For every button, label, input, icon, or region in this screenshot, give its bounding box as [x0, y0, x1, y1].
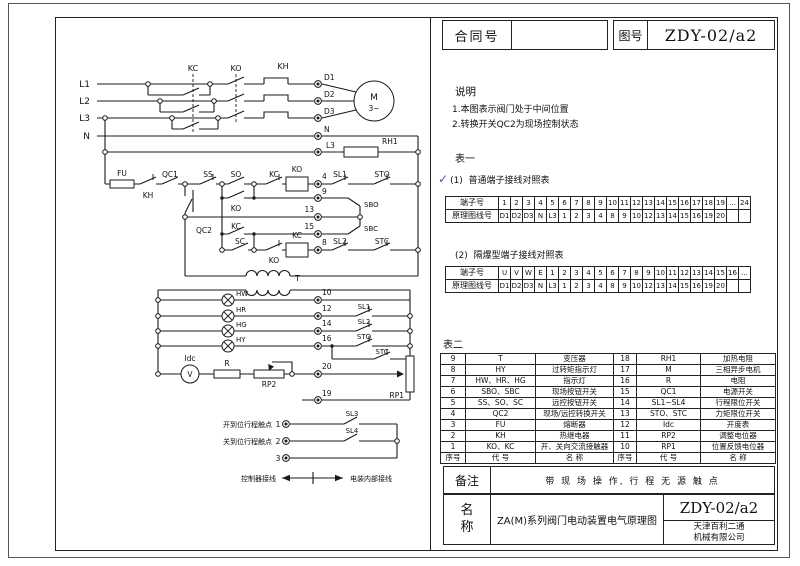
terminal-cell: E	[535, 267, 547, 280]
transformer-secondary-coil	[246, 290, 290, 296]
label-sto-torque: STO	[374, 170, 389, 179]
label-l3-terminal: L3	[326, 141, 335, 150]
terminal-cell: …	[727, 197, 739, 210]
component-cell: 开度表	[701, 420, 776, 431]
component-header-cell: 代 号	[637, 453, 701, 464]
component-cell: 3	[441, 420, 466, 431]
component-cell: M	[637, 365, 701, 376]
component-cell: 8	[441, 365, 466, 376]
terminal-cell: 4	[595, 210, 607, 223]
terminal-cell: 6	[559, 197, 571, 210]
r-resistor-box	[214, 370, 240, 378]
terminal-cell	[739, 210, 751, 223]
terminal-cell: 18	[703, 197, 715, 210]
component-cell: HW、HR、HG	[466, 376, 536, 387]
terminal-row-label: 原理图线号	[446, 210, 499, 223]
company-line-2: 机械有限公司	[693, 533, 744, 543]
label-so-button: SO	[231, 170, 242, 179]
terminal-cell: 3	[571, 267, 583, 280]
label-motor-m: M	[370, 93, 378, 103]
terminal-dot-center	[317, 345, 320, 348]
terminal-cell: D2	[511, 210, 523, 223]
component-cell: 变压器	[536, 354, 614, 365]
terminal-cell: 12	[631, 197, 643, 210]
name-label-char2: 称	[460, 520, 473, 536]
terminal-dot-center	[317, 183, 320, 186]
section-1-label: (1)	[450, 176, 463, 186]
component-header-cell: 名 称	[701, 453, 776, 464]
terminal-cell: 13	[655, 280, 667, 293]
label-terminal-15: 15	[304, 222, 314, 231]
terminal-cell	[739, 280, 751, 293]
terminal-cell: D3	[523, 210, 535, 223]
terminal-cell: 15	[679, 280, 691, 293]
drawing-number-bottom: ZDY-02/a2	[664, 495, 774, 521]
terminal-cell: 10	[631, 210, 643, 223]
label-d2-terminal: D2	[324, 90, 335, 99]
component-cell: 6	[441, 387, 466, 398]
label-hy-lamp: HY	[236, 336, 246, 344]
terminal-cell: 9	[619, 210, 631, 223]
component-cell: 10	[614, 442, 637, 453]
label-idc-v: V	[187, 370, 193, 379]
terminal-dot-center	[317, 315, 320, 318]
terminal-cell: 3	[583, 280, 595, 293]
label-l3: L3	[79, 114, 90, 124]
label-terminal-19: 19	[322, 389, 332, 398]
terminal-cell: 10	[655, 267, 667, 280]
terminal-cell: 16	[691, 210, 703, 223]
label-sl1-limit: SL1	[333, 170, 347, 179]
component-cell: R	[637, 376, 701, 387]
label-r-resistor: R	[224, 359, 229, 368]
terminal-cell: 9	[619, 280, 631, 293]
terminal-table-explosionproof: 端子号UVWE12345678910111213141516…原理图线号D1D2…	[445, 266, 751, 293]
legend-left-arrow	[282, 475, 290, 481]
remark-text: 带 现 场 操 作, 行 程 无 源 触 点	[491, 467, 774, 493]
component-cell: 2	[441, 431, 466, 442]
label-transformer: T	[294, 274, 300, 283]
terminal-cell: 14	[655, 197, 667, 210]
remark-label: 备注	[444, 467, 491, 493]
terminal-cell: 8	[607, 280, 619, 293]
terminal-cell: 2	[511, 197, 523, 210]
terminal-dot-center	[317, 373, 320, 376]
terminal-cell: 13	[643, 197, 655, 210]
component-cell: SS、SO、SC	[466, 398, 536, 409]
terminal-cell: 14	[667, 210, 679, 223]
terminal-cell: 13	[655, 210, 667, 223]
terminal-cell: W	[523, 267, 535, 280]
label-sbc-button: SBC	[364, 225, 378, 233]
terminal-cell: 20	[715, 280, 727, 293]
component-cell: QC2	[466, 409, 536, 420]
terminal-row-label: 端子号	[446, 197, 499, 210]
terminal-cell: 11	[619, 197, 631, 210]
component-cell: 电阻	[701, 376, 776, 387]
terminal-dot-center	[317, 83, 320, 86]
terminal-cell: 12	[643, 280, 655, 293]
fuse-box	[110, 180, 134, 188]
terminal-dot-center	[285, 440, 288, 443]
component-cell: 11	[614, 431, 637, 442]
label-sc-button: SC	[235, 237, 245, 246]
component-cell: 远控按钮开关	[536, 398, 614, 409]
component-cell: 17	[614, 365, 637, 376]
label-terminal-8: 8	[322, 238, 327, 247]
component-cell: 开、关向交流接触器	[536, 442, 614, 453]
label-l2: L2	[79, 97, 90, 107]
label-terminal-1: 1	[276, 420, 281, 429]
component-header-cell: 序号	[614, 453, 637, 464]
terminal-cell: 10	[631, 280, 643, 293]
terminal-cell: V	[511, 267, 523, 280]
terminal-cell: 4	[583, 267, 595, 280]
label-kc-holding: KC	[231, 222, 241, 231]
terminal-cell: 12	[643, 210, 655, 223]
terminal-dot-center	[317, 135, 320, 138]
label-ko-holding: KO	[231, 204, 242, 213]
component-cell: 热继电器	[536, 431, 614, 442]
circuit-labels: L1L2L3NKCKOKHD1D2D3NL3RH1M3~FUKHQC1SSSOK…	[79, 62, 404, 483]
component-cell: 加热电阻	[701, 354, 776, 365]
component-cell: SBO、SBC	[466, 387, 536, 398]
component-cell: 7	[441, 376, 466, 387]
label-caption-close-position: 关到位行程触点	[223, 437, 272, 446]
terminal-cell: 13	[691, 267, 703, 280]
terminal-cell: 7	[571, 197, 583, 210]
label-fu-fuse: FU	[117, 169, 127, 178]
label-ss-button: SS	[203, 170, 213, 179]
terminal-dot-center	[285, 457, 288, 460]
terminal-cell: 6	[607, 267, 619, 280]
label-stc-indication: STC	[375, 348, 388, 356]
label-idc-meter: Idc	[184, 354, 195, 363]
terminal-cell: D2	[511, 280, 523, 293]
component-cell: 位置反馈电位器	[701, 442, 776, 453]
table-two-heading: 表二	[443, 336, 463, 351]
label-qc2-selector: QC2	[196, 226, 212, 235]
terminal-cell: 17	[691, 197, 703, 210]
terminal-cell: 12	[679, 267, 691, 280]
terminal-dot-center	[317, 299, 320, 302]
terminal-dot-center	[317, 233, 320, 236]
kc-coil-box	[286, 243, 308, 257]
check-mark-icon: ✓	[438, 172, 448, 186]
label-sl4-contact: SL4	[346, 427, 359, 435]
terminal-cell: 10	[607, 197, 619, 210]
terminal-cell: 15	[679, 210, 691, 223]
terminal-table-ordinary: 端子号12345678910111213141516171819…24原理图线号…	[445, 196, 751, 223]
terminal-cell: 20	[715, 210, 727, 223]
label-qc1-switch: QC1	[162, 170, 178, 179]
label-n-line: N	[83, 132, 90, 142]
label-caption-internal-wiring: 电装内部接线	[350, 474, 392, 483]
terminal-dot-center	[317, 216, 320, 219]
note-item-2: 2.转换开关QC2为现场控制状态	[452, 117, 579, 130]
component-cell: 5	[441, 398, 466, 409]
label-caption-controller-wiring: 控制器接线	[241, 474, 276, 483]
rp2-pot-box	[254, 370, 284, 378]
company-name: 天津百利二通 机械有限公司	[664, 521, 774, 544]
section-2-text: 隔爆型端子接线对照表	[473, 251, 563, 261]
terminal-cell: 1	[499, 197, 511, 210]
label-sbo-button: SBO	[364, 201, 379, 209]
terminal-cell: 15	[715, 267, 727, 280]
table-one-section-1-title: ✓(1) 普通端子接线对照表	[438, 172, 550, 186]
terminal-cell: 8	[631, 267, 643, 280]
component-cell: HY	[466, 365, 536, 376]
component-cell: 三相异步电机	[701, 365, 776, 376]
terminal-dot-center	[317, 117, 320, 120]
section-2-label: (2)	[455, 251, 468, 261]
terminal-cell: 9	[595, 197, 607, 210]
contract-number-value	[511, 20, 608, 50]
terminal-cell: 16	[691, 280, 703, 293]
terminal-cell	[727, 210, 739, 223]
terminal-row-label: 端子号	[446, 267, 499, 280]
terminal-cell: D1	[499, 280, 511, 293]
transformer-primary-coil	[246, 271, 290, 277]
remark-block: 备注 带 现 场 操 作, 行 程 无 源 触 点	[443, 466, 775, 494]
label-kh-top: KH	[277, 62, 288, 71]
lamp-symbols	[222, 294, 234, 352]
terminal-cell: 1	[559, 210, 571, 223]
label-terminal-20: 20	[322, 362, 332, 371]
terminal-dot-center	[317, 399, 320, 402]
label-terminal-12: 12	[322, 304, 332, 313]
terminal-cell: 8	[583, 197, 595, 210]
terminal-cell: D3	[523, 280, 535, 293]
label-terminal-13: 13	[304, 205, 314, 214]
label-kc-top: KC	[188, 64, 199, 73]
component-header-cell: 名 称	[536, 453, 614, 464]
component-cell: T	[466, 354, 536, 365]
terminal-cell: N	[535, 280, 547, 293]
label-rp1-pot: RP1	[389, 391, 404, 400]
component-cell: 9	[441, 354, 466, 365]
terminal-cell: 19	[703, 210, 715, 223]
terminal-cell: 11	[667, 267, 679, 280]
name-block-right: ZDY-02/a2 天津百利二通 机械有限公司	[664, 495, 774, 544]
label-sl2-indication: SL2	[358, 318, 371, 326]
ko-coil-box	[286, 177, 308, 191]
terminal-row-label: 原理图线号	[446, 280, 499, 293]
label-rp2-pot: RP2	[262, 380, 277, 389]
terminal-cell: 14	[703, 267, 715, 280]
rp1-wiper-arrow	[397, 371, 404, 378]
table-one-heading: 表一	[455, 150, 475, 165]
drawing-number-value: ZDY-02/a2	[647, 20, 775, 50]
component-cell: RH1	[637, 354, 701, 365]
label-d1-terminal: D1	[324, 73, 335, 82]
terminal-dot-center	[317, 197, 320, 200]
component-cell: RP2	[637, 431, 701, 442]
terminal-cell: 14	[667, 280, 679, 293]
label-rh1-heater: RH1	[382, 137, 398, 146]
company-line-1: 天津百利二通	[693, 522, 744, 532]
label-stc-torque: STC	[375, 237, 389, 246]
terminal-dot-center	[285, 423, 288, 426]
component-cell: 行程限位开关	[701, 398, 776, 409]
component-cell: 现场按钮开关	[536, 387, 614, 398]
terminal-cell: 15	[667, 197, 679, 210]
label-terminal-4: 4	[322, 172, 327, 181]
terminal-cell: U	[499, 267, 511, 280]
label-kc-interlock: KC	[269, 170, 279, 179]
terminal-cell: 5	[547, 197, 559, 210]
terminal-dot-center	[317, 100, 320, 103]
component-cell: 熔断器	[536, 420, 614, 431]
component-cell: STO、STC	[637, 409, 701, 420]
terminal-cell: 5	[595, 267, 607, 280]
label-kc-coil: KC	[292, 231, 302, 240]
component-header-cell: 序号	[441, 453, 466, 464]
label-hw-lamp: HW	[236, 290, 248, 298]
terminal-cell: 3	[583, 210, 595, 223]
drawing-number-label: 图号	[613, 20, 648, 50]
terminal-cell: L3	[547, 210, 559, 223]
label-terminal-16: 16	[322, 334, 332, 343]
contract-number-label: 合同号	[442, 20, 512, 50]
component-cell: 4	[441, 409, 466, 420]
terminal-cell: 1	[547, 267, 559, 280]
terminal-cell: …	[739, 267, 751, 280]
terminal-cell: D1	[499, 210, 511, 223]
terminal-cell: 8	[607, 210, 619, 223]
terminal-cell: L3	[547, 280, 559, 293]
terminal-cell: 2	[571, 210, 583, 223]
component-cell: 现场/远控转换开关	[536, 409, 614, 420]
component-cell: SL1~SL4	[637, 398, 701, 409]
label-terminal-3: 3	[276, 454, 281, 463]
terminal-cell: N	[535, 210, 547, 223]
label-kh-contact: KH	[143, 191, 154, 200]
terminal-cell: 19	[703, 280, 715, 293]
terminal-dot-center	[317, 249, 320, 252]
terminal-cell: 2	[559, 267, 571, 280]
component-cell: 过转矩指示灯	[536, 365, 614, 376]
rh1-resistor-box	[344, 147, 378, 157]
drawing-sheet: L1L2L3NKCKOKHD1D2D3NL3RH1M3~FUKHQC1SSSOK…	[0, 0, 800, 566]
terminal-dot-center	[317, 330, 320, 333]
terminal-dots	[283, 81, 322, 462]
label-hr-lamp: HR	[236, 306, 246, 314]
label-terminal-14: 14	[322, 319, 332, 328]
terminal-cell: 3	[523, 197, 535, 210]
component-cell: 指示灯	[536, 376, 614, 387]
label-terminal-2: 2	[276, 437, 281, 446]
terminal-cell: 24	[739, 197, 751, 210]
component-header-cell: 代 号	[466, 453, 536, 464]
label-ko-interlock: KO	[269, 256, 280, 265]
label-motor-phase: 3~	[368, 104, 379, 113]
component-cell: 15	[614, 387, 637, 398]
terminal-cell: 7	[619, 267, 631, 280]
drawing-title: ZA(M)系列阀门电动装置电气原理图	[491, 495, 664, 544]
label-sl3-contact: SL3	[346, 410, 359, 418]
label-terminal-10: 10	[322, 288, 332, 297]
component-cell: 16	[614, 376, 637, 387]
note-item-1: 1.本图表示阀门处于中间位置	[452, 102, 569, 115]
terminal-cell	[727, 280, 739, 293]
legend-right-arrow	[335, 475, 343, 481]
component-cell: 1	[441, 442, 466, 453]
label-hg-lamp: HG	[236, 321, 247, 329]
component-cell: KH	[466, 431, 536, 442]
component-cell: 18	[614, 354, 637, 365]
terminal-cell: 4	[535, 197, 547, 210]
terminal-dot-center	[317, 151, 320, 154]
title-name-block: 名 称 ZA(M)系列阀门电动装置电气原理图 ZDY-02/a2 天津百利二通 …	[443, 494, 775, 545]
table-one-section-2-title: (2) 隔爆型端子接线对照表	[455, 248, 564, 261]
component-cell: QC1	[637, 387, 701, 398]
component-cell: 13	[614, 409, 637, 420]
component-cell: Idc	[637, 420, 701, 431]
label-terminal-9: 9	[322, 187, 327, 196]
terminal-cell: 9	[643, 267, 655, 280]
component-cell: KO、KC	[466, 442, 536, 453]
label-ko-coil: KO	[292, 165, 303, 174]
terminal-cell: 2	[571, 280, 583, 293]
terminal-cell: 16	[679, 197, 691, 210]
component-cell: 14	[614, 398, 637, 409]
label-n-terminal: N	[324, 125, 330, 134]
label-d3-terminal: D3	[324, 107, 335, 116]
section-1-text: 普通端子接线对照表	[469, 176, 550, 186]
rp1-pot-box	[406, 356, 414, 392]
terminal-cell: 4	[595, 280, 607, 293]
component-cell: 调整电位器	[701, 431, 776, 442]
terminal-cell: 1	[559, 280, 571, 293]
notes-heading: 说明	[455, 84, 476, 99]
label-sto-indication: STO	[357, 333, 372, 341]
component-cell: 12	[614, 420, 637, 431]
component-cell: RP1	[637, 442, 701, 453]
component-cell: FU	[466, 420, 536, 431]
component-cell: 电源开关	[701, 387, 776, 398]
label-ko-top: KO	[230, 64, 241, 73]
name-label: 名 称	[444, 495, 491, 544]
label-sl1-indication: SL1	[358, 303, 371, 311]
label-sl2-limit: SL2	[333, 237, 347, 246]
component-table: 9T变压器18RH1加热电阻8HY过转矩指示灯17M三相异步电机7HW、HR、H…	[440, 353, 776, 464]
terminal-cell: 16	[727, 267, 739, 280]
label-l1: L1	[79, 80, 90, 90]
label-caption-open-position: 开到位行程触点	[223, 420, 272, 429]
terminal-cell: 19	[715, 197, 727, 210]
component-cell: 力矩限位开关	[701, 409, 776, 420]
name-label-char1: 名	[460, 503, 473, 519]
